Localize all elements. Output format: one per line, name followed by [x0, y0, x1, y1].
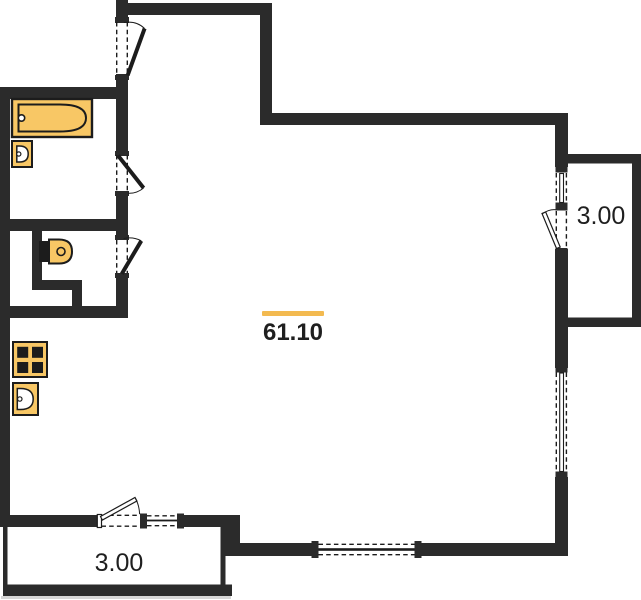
right-balcony-door [542, 210, 566, 249]
window-right-top [556, 173, 566, 203]
bottom-balcony-area-label: 3.00 [85, 550, 153, 576]
right-balcony-area-label: 3.00 [567, 203, 635, 229]
main-area-value: 61.10 [261, 320, 325, 345]
kitchen-sink [13, 383, 38, 415]
window-bottom-center [319, 544, 415, 554]
wc-door [117, 238, 142, 274]
outer-walls [0, 0, 568, 556]
floor-plan: 61.10 3.00 3.00 [0, 0, 641, 600]
window-bottom-left [147, 516, 177, 526]
area-accent-bar [262, 311, 324, 316]
washbasin-bathroom [12, 141, 32, 167]
bottom-balcony-door [97, 498, 139, 528]
right-balcony-walls [568, 154, 641, 327]
right-balcony-area-value: 3.00 [567, 203, 635, 229]
entry-door [117, 22, 145, 76]
window-right-main [556, 373, 566, 472]
cooktop-4-burner [13, 342, 47, 377]
main-area-label: 61.10 [261, 311, 325, 345]
washbasin-wc [39, 240, 72, 264]
balcony-shadow [1, 596, 231, 599]
bottom-balcony-area-value: 3.00 [85, 550, 153, 576]
door-window-jambs [115, 17, 568, 558]
floor-plan-drawing [0, 0, 641, 600]
bathroom-door [117, 155, 144, 193]
bathtub [12, 99, 92, 137]
